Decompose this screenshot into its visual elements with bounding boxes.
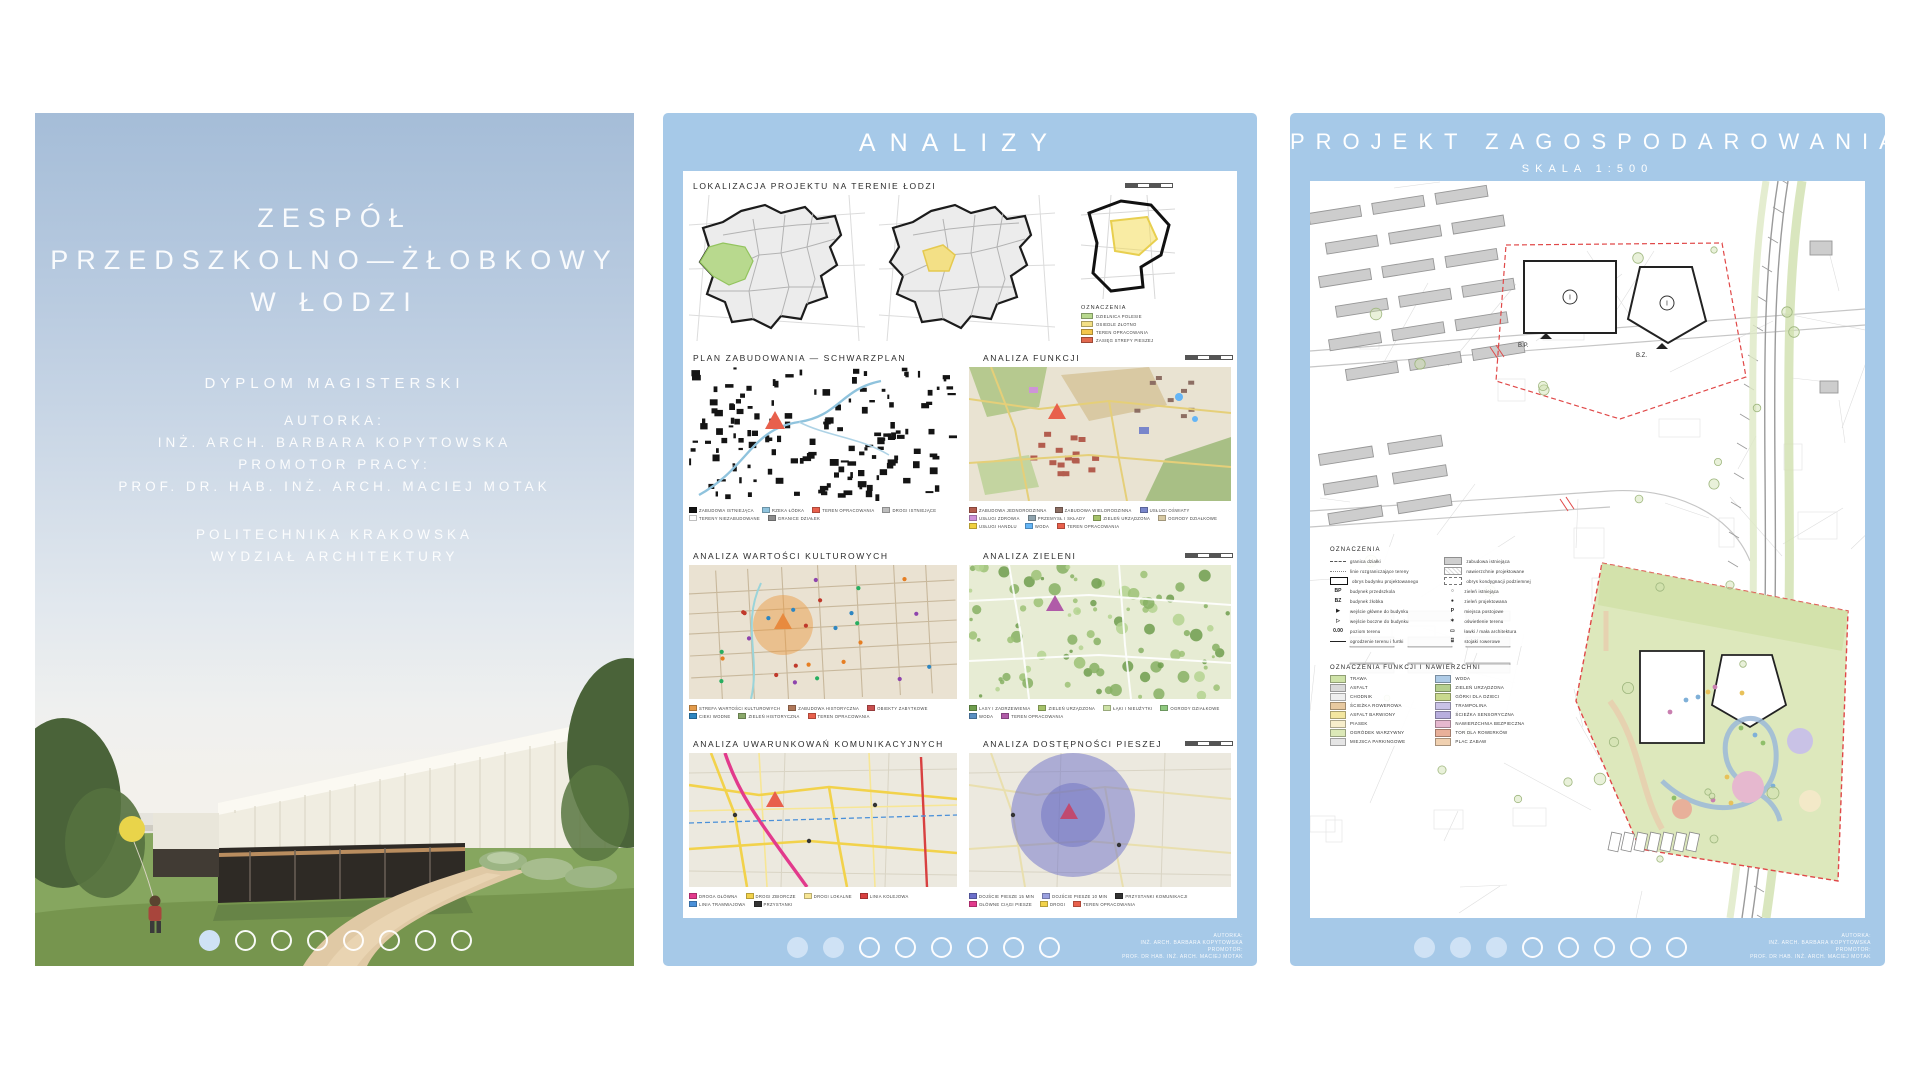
credit-line: INŻ. ARCH. BARBARA KOPYTOWSKA: [1750, 940, 1871, 947]
page-dot-7[interactable]: [1003, 937, 1024, 958]
section-title-greenery: ANALIZA ZIELENI: [983, 551, 1076, 561]
credit-line: PROF. DR HAB. INŻ. ARCH. MACIEJ MOTAK: [1122, 954, 1243, 961]
svg-text:I: I: [1569, 295, 1571, 302]
page-dot-3[interactable]: [1486, 937, 1507, 958]
board-title: ANALIZY: [663, 129, 1257, 158]
legend-symbol-row: ●zieleń projektowana: [1444, 596, 1530, 606]
legend-symbol-row: ✶oświetlenie terenu: [1444, 616, 1530, 626]
faculty-name: WYDZIAŁ ARCHITEKTURY: [35, 549, 634, 564]
legend-item: USŁUGI OŚWIATY: [1140, 507, 1190, 513]
legend-item: GŁÓWNE CIĄGI PIESZE: [969, 901, 1032, 907]
legend-item: OGRODY DZIAŁKOWE: [1158, 515, 1217, 521]
tree-left: [35, 718, 145, 898]
surface-legend-row: PIASEK: [1330, 719, 1405, 728]
map-walkability: [969, 753, 1231, 887]
legend-item: DROGA GŁÓWNA: [689, 893, 738, 899]
tree-right: [561, 658, 634, 861]
legend-functions: ZABUDOWA JEDNORODZINNAZABUDOWA WIELORODZ…: [969, 507, 1231, 529]
site-plan-sheet: I I B.P. B.Z.: [1310, 181, 1865, 918]
svg-text:B.Z.: B.Z.: [1636, 353, 1647, 359]
section-title-walkability: ANALIZA DOSTĘPNOŚCI PIESZEJ: [983, 739, 1162, 749]
map-transport: [689, 753, 957, 887]
legend-item: ZABUDOWA ISTNIEJĄCA: [689, 507, 754, 513]
legend-symbol-row: obrys kondygnacji podziemnej: [1444, 576, 1530, 586]
legend-item: ZABUDOWA HISTORYCZNA: [788, 705, 859, 711]
surface-legend-row: CHODNIK: [1330, 692, 1405, 701]
legend-item: TEREN OPRACOWANIA: [808, 713, 870, 719]
page-dot-6[interactable]: [1594, 937, 1615, 958]
legend-item: ZABUDOWA JEDNORODZINNA: [969, 507, 1047, 513]
project-title-line2: PRZEDSZKOLNO—ŻŁOBKOWY: [35, 245, 634, 276]
legend-item: ZIELEŃ HISTORYCZNA: [738, 713, 799, 719]
legend-symbol-row: BZbudynek żłobka: [1330, 596, 1418, 606]
legend-walkability: DOJŚCIE PIESZE 15 MINDOJŚCIE PIESZE 10 M…: [969, 893, 1231, 907]
page-dot-4[interactable]: [307, 930, 328, 951]
legend-item: DOJŚCIE PIESZE 15 MIN: [969, 893, 1034, 899]
board-site-plan: PROJEKT ZAGOSPODAROWANIA TERENU SKALA 1:…: [1290, 113, 1885, 966]
page-dot-7[interactable]: [415, 930, 436, 951]
legend-symbol-row: Pmiejsca postojowe: [1444, 606, 1530, 616]
surface-legend-row: ZIELEŃ URZĄDZONA: [1435, 683, 1524, 692]
page-dot-2[interactable]: [1450, 937, 1471, 958]
surface-legend-row: PLAC ZABAW: [1435, 737, 1524, 746]
legend-item: TEREN OPRACOWANIA: [1081, 329, 1153, 335]
page-dot-6[interactable]: [379, 930, 400, 951]
page-dot-4[interactable]: [895, 937, 916, 958]
credit-line: AUTORKA:: [1750, 933, 1871, 940]
legend-item: ZASIĘG STREFY PIESZEJ: [1081, 337, 1153, 343]
playground-site: [1576, 563, 1848, 881]
symbols-legend-title: OZNACZENIA: [1330, 547, 1531, 553]
credit-line: PROMOTOR:: [1750, 947, 1871, 954]
board-title-page: ZESPÓŁ PRZEDSZKOLNO—ŻŁOBKOWY W ŁODZI DYP…: [35, 113, 634, 966]
map-schwarzplan: [689, 367, 957, 501]
surfaces-legend-title: OZNACZENIA FUNKCJI I NAWIERZCHNI: [1330, 665, 1525, 671]
section-title-location: LOKALIZACJA PROJEKTU NA TERENIE ŁODZI: [693, 181, 936, 191]
legend-item: ŁĄKI I NIEUŻYTKI: [1103, 705, 1152, 711]
surface-legend-row: ŚCIEŻKA SENSORYCZNA: [1435, 710, 1524, 719]
credit-line: INŻ. ARCH. BARBARA KOPYTOWSKA: [1122, 940, 1243, 947]
page-dot-1[interactable]: [199, 930, 220, 951]
promoter-label: PROMOTOR PRACY:: [35, 457, 634, 472]
legend-title: OZNACZENIA: [1081, 305, 1153, 311]
legend-transport: DROGA GŁÓWNADROGI ZBIORCZEDROGI LOKALNEL…: [689, 893, 957, 907]
legend-symbol-row: linie rozgraniczające tereny: [1330, 566, 1418, 576]
page-dot-5[interactable]: [931, 937, 952, 958]
legend-item: USŁUGI ZDROWIA: [969, 515, 1020, 521]
legend-item: PRZEMYSŁ I SKŁADY: [1028, 515, 1086, 521]
credits-block: AUTORKA:INŻ. ARCH. BARBARA KOPYTOWSKAPRO…: [1750, 933, 1871, 961]
legend-item: PRZYSTANKI KOMUNIKACJI: [1115, 893, 1187, 899]
legend-schwarzplan: ZABUDOWA ISTNIEJĄCARZEKA ŁÓDKATEREN OPRA…: [689, 507, 957, 521]
surface-legend-row: OGRÓDEK WARZYWNY: [1330, 728, 1405, 737]
surface-legend-row: TRAMPOLINA: [1435, 701, 1524, 710]
pagination-dots: [199, 930, 472, 951]
legend-greenery: LASY I ZADRZEWIENIAZIELEŃ URZĄDZONAŁĄKI …: [969, 705, 1231, 719]
legend-symbol-row: ○zieleń istniejąca: [1444, 586, 1530, 596]
surface-legend-row: MIEJSCA PARKINGOWE: [1330, 737, 1405, 746]
legend-item: LINIA TRAMWAJOWA: [689, 901, 746, 907]
surfaces-legend: OZNACZENIA FUNKCJI I NAWIERZCHNI TRAWAAS…: [1330, 665, 1525, 746]
balloon: [119, 816, 145, 842]
map-lodz-district: [689, 195, 865, 341]
legend-symbol-row: ▷wejście boczne do budynku: [1330, 616, 1418, 626]
degree-label: DYPLOM MAGISTERSKI: [35, 375, 634, 392]
legend-item: DROGI: [1040, 901, 1065, 907]
legend-item: OBIEKTY ZABYTKOWE: [867, 705, 928, 711]
legend-item: USŁUGI HANDLU: [969, 523, 1017, 529]
page-dot-5[interactable]: [343, 930, 364, 951]
page-dot-8[interactable]: [1039, 937, 1060, 958]
legend-symbol-row: zabudowa istniejąca: [1444, 556, 1530, 566]
author-label: AUTORKA:: [35, 413, 634, 428]
svg-text:B.P.: B.P.: [1518, 343, 1529, 349]
legend-symbol-row: ▶wejście główne do budynku: [1330, 606, 1418, 616]
legend-item: STREFA WARTOŚCI KULTUROWYCH: [689, 705, 780, 711]
legend-symbol-row: granica działki: [1330, 556, 1418, 566]
map-cultural-values: [689, 565, 957, 699]
map-site-boundary: [1081, 195, 1175, 299]
legend-item: DROGI LOKALNE: [804, 893, 852, 899]
svg-text:I: I: [1666, 301, 1668, 308]
legend-symbol-row: nawierzchnie projektowane: [1444, 566, 1530, 576]
scale-bar: [1185, 553, 1233, 558]
surface-legend-row: NAWIERZCHNIA BEZPIECZNA: [1435, 719, 1524, 728]
author-name: INŻ. ARCH. BARBARA KOPYTOWSKA: [35, 435, 634, 450]
credits-block: AUTORKA:INŻ. ARCH. BARBARA KOPYTOWSKAPRO…: [1122, 933, 1243, 961]
page-dot-8[interactable]: [451, 930, 472, 951]
legend-item: DZIELNICA POLESIE: [1081, 313, 1153, 319]
university-name: POLITECHNIKA KRAKOWSKA: [35, 527, 634, 542]
legend-symbol-row: BPbudynek przedszkola: [1330, 586, 1418, 596]
surface-legend-row: TRAWA: [1330, 674, 1405, 683]
project-title-line1: ZESPÓŁ: [35, 203, 634, 234]
legend-item: TEREN OPRACOWANIA: [812, 507, 874, 513]
page-dot-4[interactable]: [1522, 937, 1543, 958]
legend-item: ZIELEŃ URZĄDZONA: [1038, 705, 1095, 711]
legend-cultural: STREFA WARTOŚCI KULTUROWYCHZABUDOWA HIST…: [689, 705, 957, 719]
legend-item: DOJŚCIE PIESZE 10 MIN: [1042, 893, 1107, 899]
scale-bar: [1185, 355, 1233, 360]
surface-legend-row: TOR DLA ROWERKÓW: [1435, 728, 1524, 737]
legend-item: LASY I ZADRZEWIENIA: [969, 705, 1030, 711]
location-legend: OZNACZENIA DZIELNICA POLESIEOSIEDLE ZŁOT…: [1081, 305, 1153, 343]
legend-item: TERENY NIEZABUDOWANE: [689, 515, 760, 521]
legend-item: ZIELEŃ URZĄDZONA: [1093, 515, 1150, 521]
page-dot-5[interactable]: [1558, 937, 1579, 958]
legend-item: LINIA KOLEJOWA: [860, 893, 909, 899]
legend-item: DROGI ISTNIEJĄCE: [882, 507, 936, 513]
promoter-name: PROF. DR. HAB. INŻ. ARCH. MACIEJ MOTAK: [35, 479, 634, 494]
page-dot-2[interactable]: [235, 930, 256, 951]
legend-item: OSIEDLE ZŁOTNO: [1081, 321, 1153, 327]
legend-symbol-row: obrys budynku projektowanego: [1330, 576, 1418, 586]
page-dot-3[interactable]: [859, 937, 880, 958]
legend-item: TEREN OPRACOWANIA: [1073, 901, 1135, 907]
legend-item: PRZYSTANKI: [754, 901, 793, 907]
surface-legend-row: GÓRKI DLA DZIECI: [1435, 692, 1524, 701]
legend-item: DROGI ZBIORCZE: [746, 893, 796, 899]
map-lodz-estate: [879, 195, 1055, 341]
section-title-cultural: ANALIZA WARTOŚCI KULTUROWYCH: [693, 551, 889, 561]
legend-symbol-row: 0.00poziom terenu: [1330, 626, 1418, 636]
legend-item: CIEKI WODNE: [689, 713, 730, 719]
legend-symbol-row: ⌹stojaki rowerowe: [1444, 636, 1530, 646]
surface-legend-row: ASFALT BARWIONY: [1330, 710, 1405, 719]
page-dot-1[interactable]: [787, 937, 808, 958]
legend-symbol-row: ▭ławki / mała architektura: [1444, 626, 1530, 636]
page-dot-8[interactable]: [1666, 937, 1687, 958]
credit-line: PROMOTOR:: [1122, 947, 1243, 954]
map-greenery: [969, 565, 1231, 699]
surface-legend-row: ŚCIEŻKA ROWEROWA: [1330, 701, 1405, 710]
board-analyses: ANALIZY LOKALIZACJA PROJEKTU NA TERENIE …: [663, 113, 1257, 966]
page-dot-6[interactable]: [967, 937, 988, 958]
section-title-transport: ANALIZA UWARUNKOWAŃ KOMUNIKACYJNYCH: [693, 739, 944, 749]
legend-item: OGRODY DZIAŁKOWE: [1160, 705, 1219, 711]
page-dot-3[interactable]: [271, 930, 292, 951]
board-title: PROJEKT ZAGOSPODAROWANIA TERENU: [1290, 129, 1885, 155]
page-dot-7[interactable]: [1630, 937, 1651, 958]
credit-line: AUTORKA:: [1122, 933, 1243, 940]
legend-item: WODA: [969, 713, 993, 719]
legend-item: WODA: [1025, 523, 1049, 529]
surface-legend-row: ASFALT: [1330, 683, 1405, 692]
pagination-dots: [787, 937, 1060, 958]
credit-line: PROF. DR HAB. INŻ. ARCH. MACIEJ MOTAK: [1750, 954, 1871, 961]
section-title-schwarzplan: PLAN ZABUDOWANIA — SCHWARZPLAN: [693, 353, 906, 363]
surface-legend-row: WODA: [1435, 674, 1524, 683]
section-title-functions: ANALIZA FUNKCJI: [983, 353, 1080, 363]
presentation-canvas: ZESPÓŁ PRZEDSZKOLNO—ŻŁOBKOWY W ŁODZI DYP…: [0, 0, 1920, 1080]
map-functions: [969, 367, 1231, 501]
board-subtitle: SKALA 1:500: [1290, 163, 1885, 175]
legend-item: ZABUDOWA WIELORODZINNA: [1055, 507, 1132, 513]
legend-item: GRANICE DZIAŁEK: [768, 515, 820, 521]
scale-bar: [1125, 183, 1173, 188]
legend-item: TEREN OPRACOWANIA: [1001, 713, 1063, 719]
scale-bar: [1185, 741, 1233, 746]
pagination-dots: [1414, 937, 1687, 958]
project-title-line3: W ŁODZI: [35, 287, 634, 318]
legend-symbol-row: ogrodzenie terenu i furtki: [1330, 636, 1418, 646]
page-dot-1[interactable]: [1414, 937, 1435, 958]
legend-item: RZEKA ŁÓDKA: [762, 507, 804, 513]
symbols-legend: OZNACZENIA granica działkilinie rozgrani…: [1330, 547, 1531, 646]
legend-item: TEREN OPRACOWANIA: [1057, 523, 1119, 529]
analyses-sheet: LOKALIZACJA PROJEKTU NA TERENIE ŁODZI: [683, 171, 1237, 918]
page-dot-2[interactable]: [823, 937, 844, 958]
